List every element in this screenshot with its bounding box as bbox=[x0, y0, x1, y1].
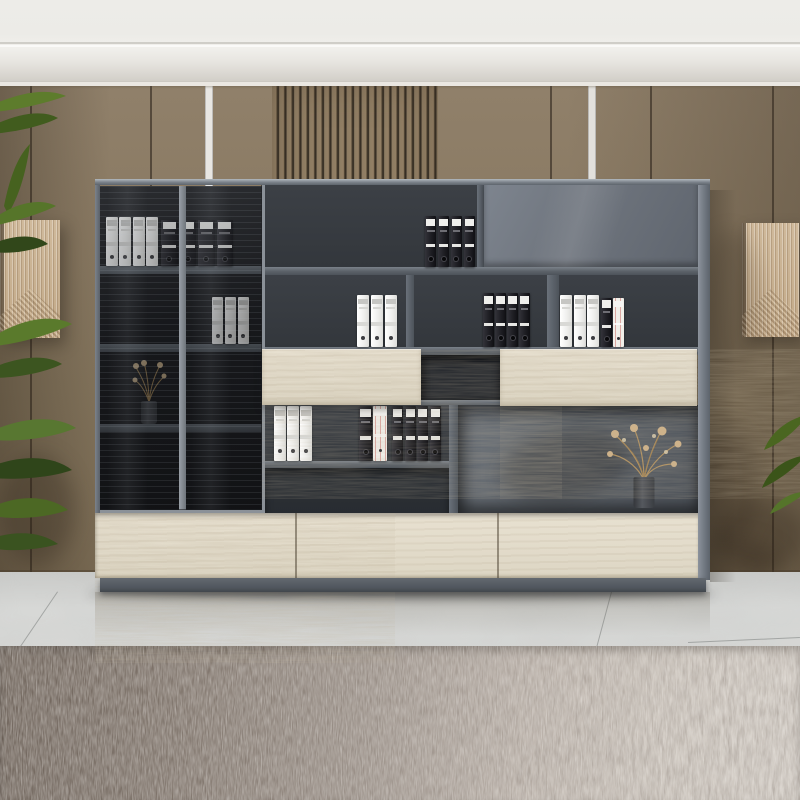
shelf-bay-row2-right bbox=[559, 275, 698, 347]
glass-cabinet-frame bbox=[95, 181, 265, 513]
plant-leaves bbox=[756, 396, 800, 514]
shelf-divider bbox=[406, 275, 414, 355]
oak-flip-door-left bbox=[262, 349, 421, 405]
wall-cornice bbox=[0, 82, 800, 86]
office-room-scene bbox=[0, 0, 800, 800]
potted-plant-left bbox=[0, 86, 112, 572]
cabinet-plinth bbox=[100, 578, 706, 592]
shelf-bay-row4-lower bbox=[265, 468, 449, 513]
shelf-bay-row2-left bbox=[265, 275, 406, 347]
shelf-divider bbox=[477, 185, 484, 275]
plant-leaves-right bbox=[756, 396, 800, 514]
grey-cabinet-door bbox=[484, 181, 698, 267]
shelf-bay-row2-middle bbox=[414, 275, 547, 347]
rug-texture bbox=[0, 646, 800, 800]
ceiling-molding-highlight bbox=[0, 45, 800, 47]
drawer-seam bbox=[497, 513, 499, 578]
shelf-bay-top bbox=[265, 185, 477, 267]
cabinet-top-edge bbox=[95, 179, 710, 185]
cabinet-wall-shadow bbox=[710, 190, 736, 582]
open-box-between-wood-panels bbox=[421, 355, 500, 400]
drawer-seam bbox=[295, 513, 297, 578]
plant-leaves bbox=[0, 86, 112, 572]
ceiling-molding-shadow bbox=[0, 42, 800, 44]
shelf-band bbox=[265, 267, 698, 275]
cabinet-floor-reflection bbox=[95, 592, 710, 636]
area-rug bbox=[0, 646, 800, 800]
oak-drawer-row bbox=[95, 513, 700, 578]
shelf-divider bbox=[449, 405, 458, 513]
shelf-bay-row4 bbox=[265, 405, 449, 461]
shelf-band bbox=[265, 461, 449, 468]
cabinet-side-panel bbox=[698, 180, 710, 580]
oak-flip-door-right bbox=[500, 349, 697, 406]
shelf-divider bbox=[547, 275, 559, 355]
